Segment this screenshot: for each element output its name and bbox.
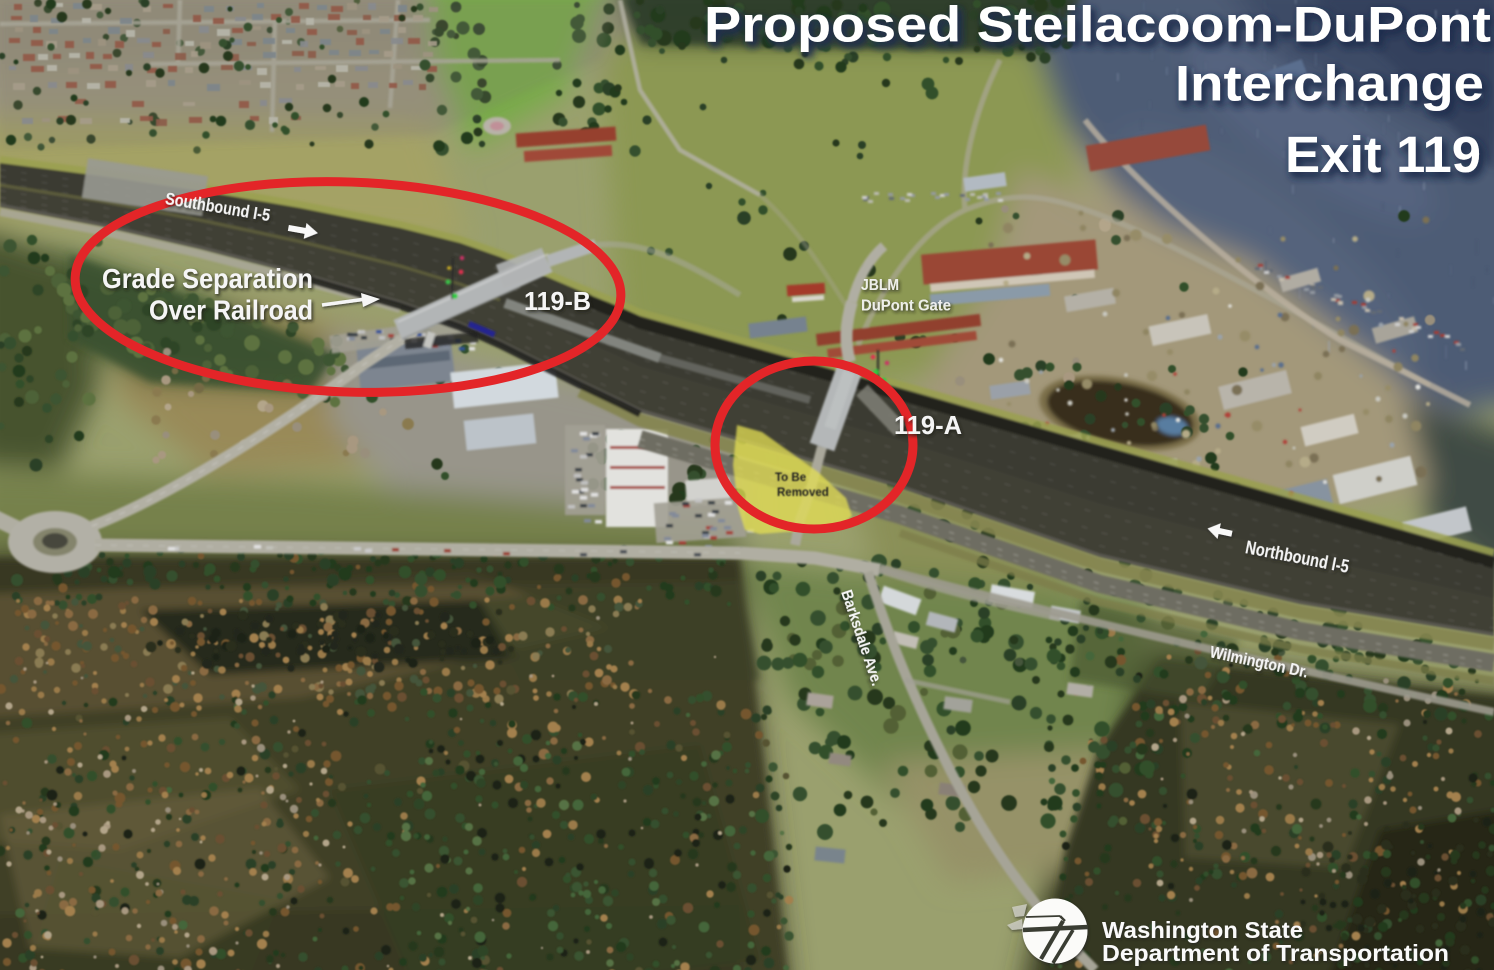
svg-text:JBLM: JBLM <box>861 277 899 294</box>
svg-text:119-B: 119-B <box>524 288 591 316</box>
svg-text:Grade Separation: Grade Separation <box>102 263 313 294</box>
svg-text:Department of Transportation: Department of Transportation <box>1102 940 1449 966</box>
svg-text:Exit 119: Exit 119 <box>1285 126 1481 183</box>
svg-text:Over Railroad: Over Railroad <box>149 295 313 326</box>
svg-text:DuPont Gate: DuPont Gate <box>861 298 951 315</box>
svg-text:Removed: Removed <box>777 487 829 499</box>
svg-text:119-A: 119-A <box>894 410 962 440</box>
svg-text:Proposed Steilacoom-DuPont: Proposed Steilacoom-DuPont <box>704 0 1491 53</box>
svg-text:To Be: To Be <box>775 472 806 484</box>
svg-text:Interchange: Interchange <box>1175 56 1484 112</box>
